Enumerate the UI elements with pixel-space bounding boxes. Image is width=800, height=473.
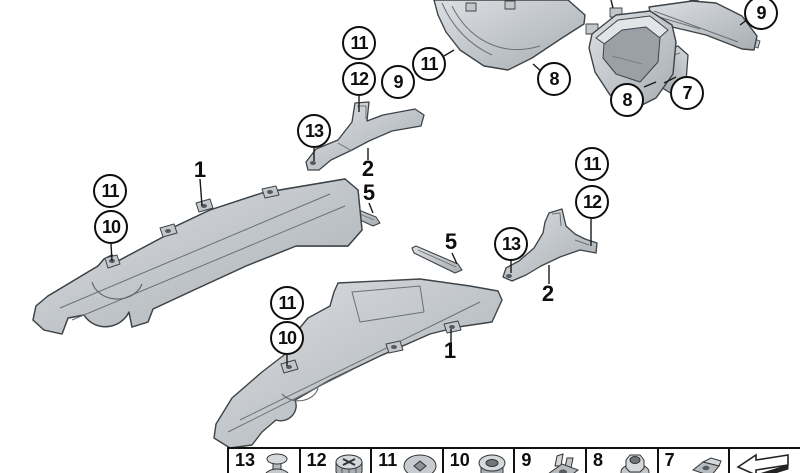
- callout-number: 8: [622, 90, 631, 111]
- callout-number: 12: [350, 69, 368, 90]
- front-splash-shield: [434, 0, 585, 70]
- callout-circle[interactable]: 8: [610, 83, 644, 117]
- legend-cell-9[interactable]: 9: [515, 449, 587, 473]
- callout-number: 7: [682, 83, 691, 104]
- callout-number: 10: [102, 217, 120, 238]
- legend-cell-8[interactable]: 8: [587, 449, 659, 473]
- legend-number: 11: [378, 450, 397, 471]
- legend-number: 10: [450, 450, 470, 471]
- speed-nut-icon: [545, 452, 581, 473]
- callout-number: 8: [549, 69, 558, 90]
- part-label[interactable]: 2: [533, 282, 563, 306]
- legend-number: 8: [593, 450, 603, 471]
- legend-cell-12[interactable]: 12: [301, 449, 373, 473]
- parts-diagram: 11 12 9 11 13 8 8 7 9 11 10 11 10 11 12 …: [0, 0, 800, 473]
- callout-circle[interactable]: 11: [342, 26, 376, 60]
- callout-circle[interactable]: 12: [342, 62, 376, 96]
- legend-cell-arrow[interactable]: [730, 449, 800, 473]
- callout-circle[interactable]: 11: [270, 286, 304, 320]
- grommet-icon: [474, 452, 510, 473]
- part-label[interactable]: 2: [353, 157, 383, 181]
- callout-number: 11: [583, 154, 600, 175]
- legend-number: 7: [665, 450, 675, 471]
- callout-number: 9: [393, 72, 402, 93]
- legend-number: 9: [521, 450, 531, 471]
- callout-circle[interactable]: 10: [94, 210, 128, 244]
- callout-circle[interactable]: 9: [381, 65, 415, 99]
- part-label[interactable]: 1: [185, 158, 215, 182]
- callout-number: 11: [278, 293, 295, 314]
- callout-number: 13: [305, 121, 323, 142]
- flange-hex-nut-icon: [617, 452, 653, 473]
- body-clip-icon: [402, 452, 438, 473]
- legend-cell-11[interactable]: 11: [372, 449, 444, 473]
- fastener-legend: 13 12 11: [227, 447, 800, 473]
- expanding-rivet-icon: [259, 452, 295, 473]
- legend-cell-7[interactable]: 7: [659, 449, 731, 473]
- callout-circle[interactable]: 8: [537, 62, 571, 96]
- underbody-panel-center: [214, 279, 502, 448]
- underbody-panel-left: [33, 179, 362, 334]
- callout-number: 13: [502, 234, 520, 255]
- clip-nut-icon: [689, 452, 725, 473]
- callout-number: 12: [583, 192, 601, 213]
- part-label[interactable]: 5: [354, 181, 384, 205]
- callout-number: 11: [350, 33, 367, 54]
- legend-number: 12: [307, 450, 327, 471]
- screw-grommet-icon: [331, 452, 367, 473]
- callout-circle[interactable]: 12: [575, 185, 609, 219]
- part-label[interactable]: 1: [435, 339, 465, 363]
- callout-circle[interactable]: 11: [412, 47, 446, 81]
- callout-circle[interactable]: 7: [670, 76, 704, 110]
- callout-circle[interactable]: 11: [575, 147, 609, 181]
- callout-number: 11: [420, 54, 437, 75]
- callout-number: 11: [101, 181, 118, 202]
- legend-cell-10[interactable]: 10: [444, 449, 516, 473]
- part-label[interactable]: 5: [436, 230, 466, 254]
- legend-cell-13[interactable]: 13: [229, 449, 301, 473]
- callout-number: 10: [278, 328, 296, 349]
- callout-circle[interactable]: 13: [494, 227, 528, 261]
- callout-circle[interactable]: 11: [93, 174, 127, 208]
- callout-circle[interactable]: 10: [270, 321, 304, 355]
- legend-number: 13: [235, 450, 255, 471]
- callout-number: 9: [756, 3, 765, 24]
- direction-arrow-icon: [736, 451, 798, 473]
- callout-circle[interactable]: 13: [297, 114, 331, 148]
